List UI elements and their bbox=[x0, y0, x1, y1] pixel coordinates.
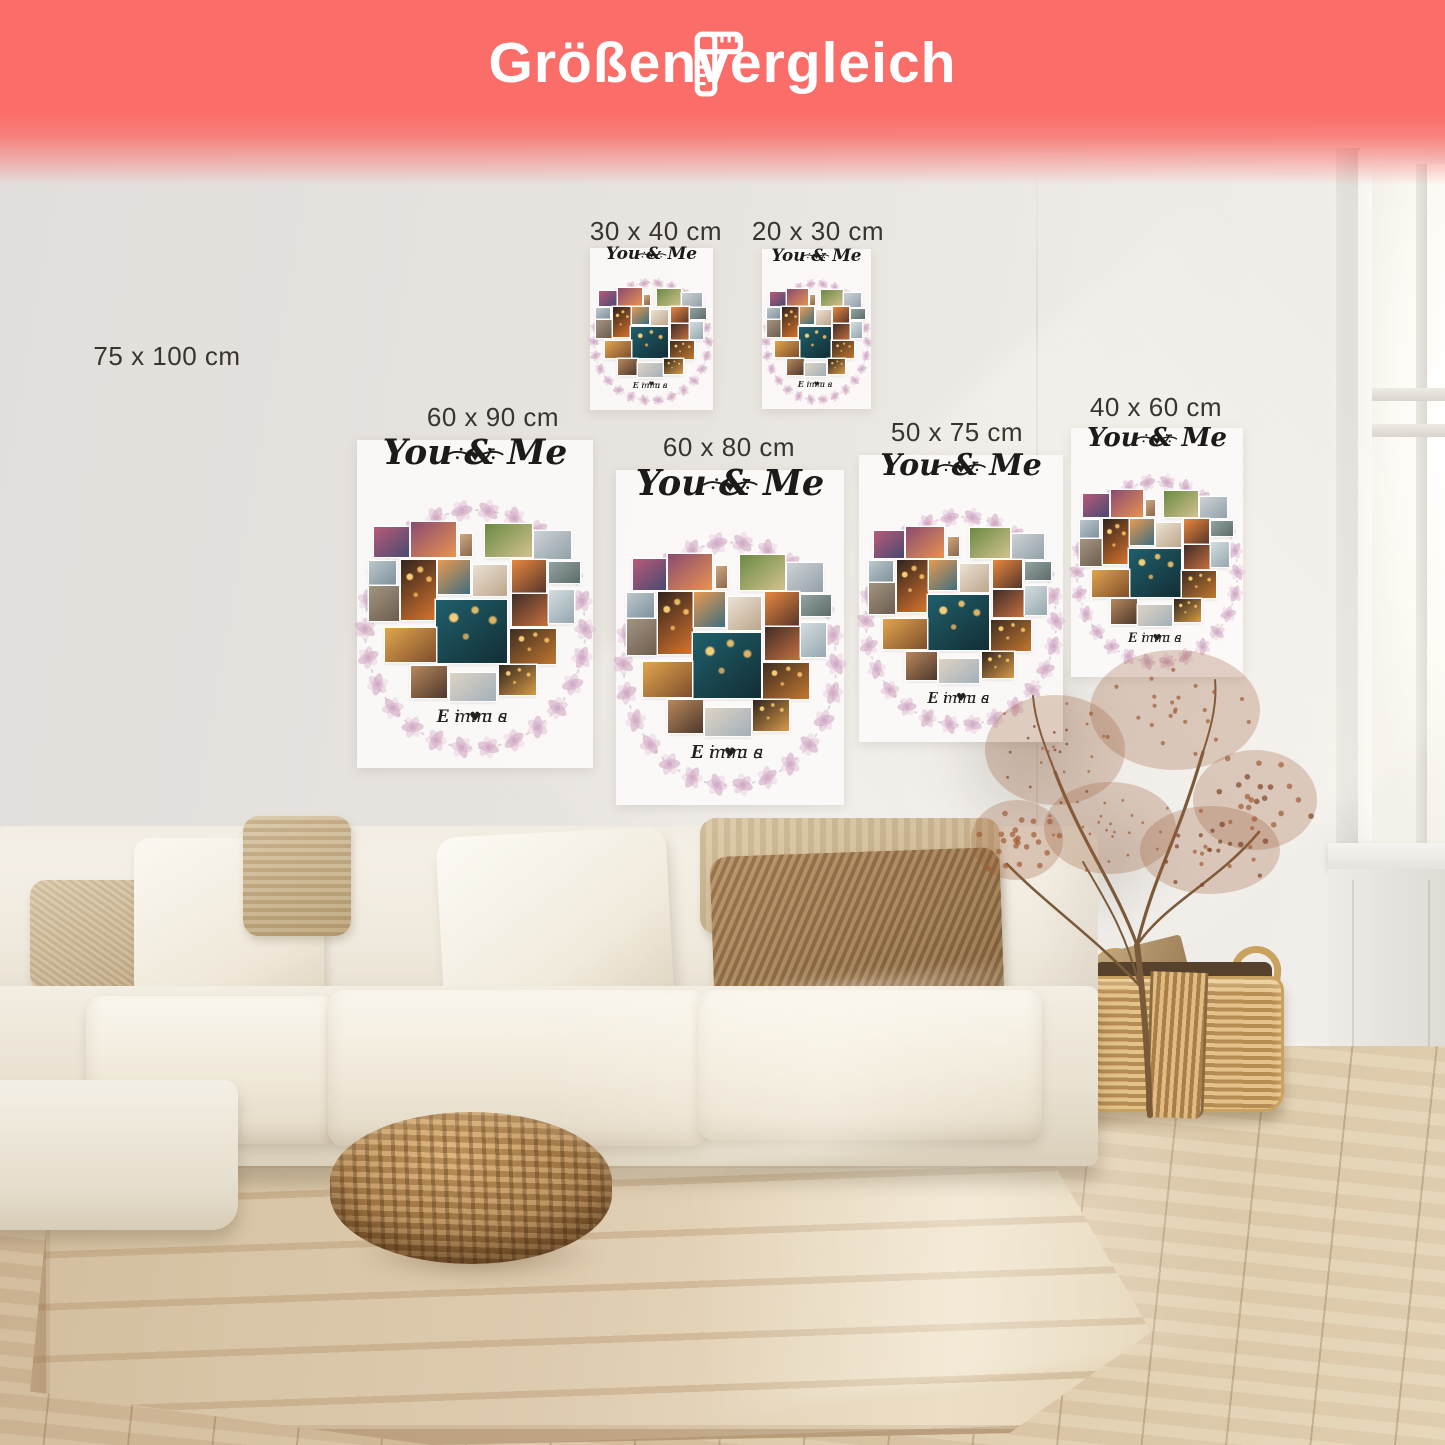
photo-tile-palm-sunset-photo bbox=[1130, 519, 1153, 545]
photo-tile-palm-sunset-photo bbox=[632, 307, 649, 324]
photo-tile-fire-dinner-photo bbox=[510, 629, 557, 664]
photo-tile-wedding-group-photo bbox=[960, 564, 989, 592]
poster-title-block: You & Me♥ bbox=[859, 466, 1063, 512]
photo-tile-ocean-sunset-photo bbox=[671, 307, 689, 323]
photo-tile-palm-party-photo bbox=[618, 288, 641, 305]
photo-tile-palm-sunset-photo bbox=[800, 307, 815, 324]
photo-tile-couple-walk-photo bbox=[596, 308, 610, 320]
photo-tile-golden-field-photo bbox=[1092, 570, 1129, 596]
photo-tile-ocean-sunset-photo bbox=[1184, 519, 1209, 544]
photo-tile-family-beach-photo bbox=[705, 708, 750, 737]
photo-tile-campfire-photo bbox=[658, 592, 692, 653]
photo-tile-portrait-photo bbox=[460, 534, 472, 555]
photo-tile-golden-field-photo bbox=[643, 662, 692, 697]
photo-tile-dinner-friends-photo bbox=[668, 700, 703, 733]
heart-icon: ♥ bbox=[1153, 435, 1161, 447]
photo-tile-party-lights-photo bbox=[631, 327, 668, 358]
photo-tile-palm-sunset-photo bbox=[438, 560, 470, 594]
photo-tile-palm-party-photo bbox=[1111, 490, 1144, 517]
wicker-pouf bbox=[330, 1112, 612, 1264]
photo-tile-couple-beach-photo bbox=[1211, 542, 1230, 567]
window-glass bbox=[1372, 164, 1445, 848]
photo-tile-golden-field-photo bbox=[883, 619, 927, 649]
photo-tile-lanterns-photo bbox=[753, 700, 789, 731]
photo-tile-portrait-photo bbox=[1146, 500, 1155, 516]
photo-tile-party-lights-photo bbox=[799, 327, 832, 358]
photo-tile-ocean-sunset-photo bbox=[765, 592, 798, 625]
photo-tile-beach-group-photo bbox=[682, 293, 701, 307]
photo-tile-wedding-group-photo bbox=[816, 310, 832, 326]
photo-tile-party-lights-photo bbox=[693, 633, 762, 698]
photo-tile-elephants-photo bbox=[767, 320, 781, 337]
photo-tile-friends-group-photo bbox=[1025, 562, 1052, 580]
photo-tile-golden-field-photo bbox=[385, 628, 436, 663]
name-right: Emma bbox=[633, 380, 671, 390]
size-label-20x30: 20 x 30 cm bbox=[678, 216, 958, 247]
photo-tile-silhouettes-photo bbox=[512, 594, 548, 626]
photo-collage bbox=[596, 289, 707, 376]
heart-icon: ♥ bbox=[814, 253, 819, 261]
photo-tile-silhouettes-photo bbox=[765, 627, 800, 659]
photo-tile-friends-group-photo bbox=[690, 308, 706, 318]
photo-tile-couple-beach-photo bbox=[801, 623, 826, 657]
photo-tile-beach-group-photo bbox=[534, 531, 571, 559]
photo-tile-elephants-photo bbox=[1080, 539, 1102, 566]
photo-tile-party-pink-photo bbox=[1083, 494, 1109, 517]
photo-tile-friends-group-photo bbox=[549, 562, 580, 583]
window-glazing-bar bbox=[1416, 164, 1427, 848]
heart-icon: ♥ bbox=[957, 462, 966, 476]
photo-tile-party-lights-photo bbox=[1129, 549, 1181, 597]
photo-tile-portrait-photo bbox=[716, 566, 728, 588]
dried-plant bbox=[955, 600, 1335, 1120]
photo-tile-lanterns-photo bbox=[828, 359, 845, 374]
poster-title-block: You & Me♥ bbox=[357, 453, 593, 505]
photo-tile-couple-beach-photo bbox=[549, 590, 574, 623]
photo-tile-portrait-photo bbox=[644, 295, 650, 305]
photo-tile-portrait-photo bbox=[948, 537, 958, 556]
photo-tile-campfire-photo bbox=[1103, 519, 1129, 565]
photo-tile-fire-dinner-photo bbox=[1182, 571, 1216, 598]
photo-tile-golden-field-photo bbox=[605, 341, 632, 358]
photo-tile-couple-walk-photo bbox=[767, 308, 780, 320]
heart-icon: ♥ bbox=[649, 252, 654, 260]
photo-tile-elephants-photo bbox=[596, 320, 612, 337]
header-banner: Größenvergleich bbox=[0, 0, 1445, 185]
size-label-40x60: 40 x 60 cm bbox=[1016, 392, 1296, 423]
photo-tile-garden-party-photo bbox=[485, 524, 532, 558]
poster-title-block: You & Me♥ bbox=[616, 483, 844, 537]
photo-tile-campfire-photo bbox=[782, 307, 798, 336]
photo-tile-fire-dinner-photo bbox=[763, 663, 808, 699]
photo-tile-campfire-photo bbox=[897, 560, 928, 613]
size-label-75x100: 75 x 100 cm bbox=[27, 341, 307, 372]
photo-collage bbox=[767, 290, 865, 376]
photo-tile-family-beach-photo bbox=[638, 363, 662, 377]
photo-tile-ocean-sunset-photo bbox=[833, 307, 849, 323]
photo-tile-beach-group-photo bbox=[787, 563, 822, 592]
photo-tile-party-lights-photo bbox=[436, 600, 507, 663]
photo-collage bbox=[627, 555, 832, 736]
sofa-pillow-knit bbox=[243, 816, 351, 936]
heart-icon: ♥ bbox=[725, 479, 735, 495]
photo-tile-dinner-friends-photo bbox=[787, 359, 804, 375]
photo-tile-lanterns-photo bbox=[664, 359, 683, 374]
window-sill bbox=[1328, 843, 1445, 869]
photo-tile-elephants-photo bbox=[869, 583, 895, 614]
size-label-60x90: 60 x 90 cm bbox=[353, 402, 633, 433]
heart-icon: ♥ bbox=[470, 448, 480, 463]
photo-tile-palm-sunset-photo bbox=[929, 560, 957, 590]
sofa-chaise bbox=[0, 1080, 238, 1230]
photo-tile-dinner-friends-photo bbox=[411, 666, 447, 698]
photo-tile-wedding-group-photo bbox=[1156, 523, 1181, 547]
photo-tile-wedding-group-photo bbox=[728, 597, 761, 630]
poster-title-block: You & Me♥ bbox=[1071, 438, 1243, 478]
photo-tile-garden-party-photo bbox=[740, 555, 785, 589]
name-right: Emma bbox=[437, 707, 514, 727]
photo-tile-friends-group-photo bbox=[1211, 521, 1234, 537]
photo-tile-dinner-friends-photo bbox=[906, 652, 937, 680]
name-right: Emma bbox=[798, 379, 835, 389]
photo-tile-couple-walk-photo bbox=[627, 593, 653, 618]
photo-tile-couple-walk-photo bbox=[869, 561, 893, 582]
photo-tile-friends-group-photo bbox=[851, 309, 865, 319]
photo-tile-beach-group-photo bbox=[844, 293, 861, 307]
photo-tile-lanterns-photo bbox=[499, 665, 536, 695]
photo-tile-family-beach-photo bbox=[450, 673, 497, 701]
photo-tile-palm-sunset-photo bbox=[694, 592, 725, 627]
poster-title-block: You & Me♥ bbox=[762, 255, 871, 281]
photo-tile-garden-party-photo bbox=[821, 290, 843, 306]
photo-tile-garden-party-photo bbox=[657, 289, 681, 306]
photo-tile-palm-party-photo bbox=[787, 289, 808, 306]
banner-title: Größenvergleich bbox=[489, 30, 957, 96]
photo-tile-garden-party-photo bbox=[970, 528, 1010, 557]
photo-tile-wedding-group-photo bbox=[651, 310, 669, 326]
photo-tile-portrait-photo bbox=[810, 295, 816, 305]
photo-tile-party-pink-photo bbox=[374, 527, 409, 557]
poster-60x90: You & Me♥Linus♥Emma bbox=[357, 440, 593, 768]
photo-tile-campfire-photo bbox=[613, 307, 632, 337]
photo-tile-couple-walk-photo bbox=[369, 561, 396, 585]
photo-tile-couple-beach-photo bbox=[851, 322, 863, 338]
window-jamb bbox=[1336, 148, 1360, 870]
photo-tile-silhouettes-photo bbox=[833, 324, 850, 339]
photo-tile-party-pink-photo bbox=[770, 292, 786, 307]
photo-tile-dinner-friends-photo bbox=[618, 359, 637, 375]
photo-tile-palm-party-photo bbox=[668, 554, 711, 590]
photo-tile-party-pink-photo bbox=[599, 291, 617, 306]
photo-tile-silhouettes-photo bbox=[1184, 545, 1210, 569]
photo-tile-golden-field-photo bbox=[775, 341, 799, 358]
photo-tile-party-pink-photo bbox=[874, 531, 904, 557]
photo-tile-fire-dinner-photo bbox=[832, 341, 854, 358]
photo-tile-ocean-sunset-photo bbox=[512, 560, 546, 593]
photo-tile-elephants-photo bbox=[627, 619, 656, 655]
photo-tile-couple-beach-photo bbox=[690, 322, 703, 339]
poster-20x30: You & Me♥Linus♥Emma bbox=[762, 249, 871, 409]
photo-tile-elephants-photo bbox=[369, 586, 399, 621]
poster-60x80: You & Me♥Linus♥Emma bbox=[616, 470, 844, 805]
photo-tile-silhouettes-photo bbox=[671, 324, 690, 340]
photo-tile-beach-group-photo bbox=[1012, 534, 1044, 559]
photo-tile-garden-party-photo bbox=[1164, 491, 1198, 517]
photo-collage bbox=[369, 524, 581, 701]
poster-title-block: You & Me♥ bbox=[590, 254, 713, 280]
photo-tile-ocean-sunset-photo bbox=[993, 560, 1023, 589]
size-comparison-scene: 75 x 100 cm30 x 40 cmYou & Me♥Linus♥Emma… bbox=[0, 0, 1445, 1445]
name-right: Emma bbox=[691, 743, 769, 763]
photo-tile-friends-group-photo bbox=[801, 595, 831, 616]
photo-tile-family-beach-photo bbox=[805, 363, 827, 377]
window-glazing-bar bbox=[1372, 388, 1445, 401]
photo-tile-wedding-group-photo bbox=[473, 565, 507, 597]
poster-30x40: You & Me♥Linus♥Emma bbox=[590, 248, 713, 410]
photo-tile-campfire-photo bbox=[401, 560, 437, 620]
window-glazing-bar bbox=[1372, 424, 1445, 437]
photo-tile-beach-group-photo bbox=[1200, 497, 1227, 519]
photo-tile-palm-party-photo bbox=[906, 527, 945, 558]
photo-tile-couple-walk-photo bbox=[1080, 520, 1100, 538]
photo-tile-fire-dinner-photo bbox=[670, 341, 694, 358]
photo-tile-party-pink-photo bbox=[633, 559, 667, 590]
photo-tile-palm-party-photo bbox=[411, 522, 456, 557]
